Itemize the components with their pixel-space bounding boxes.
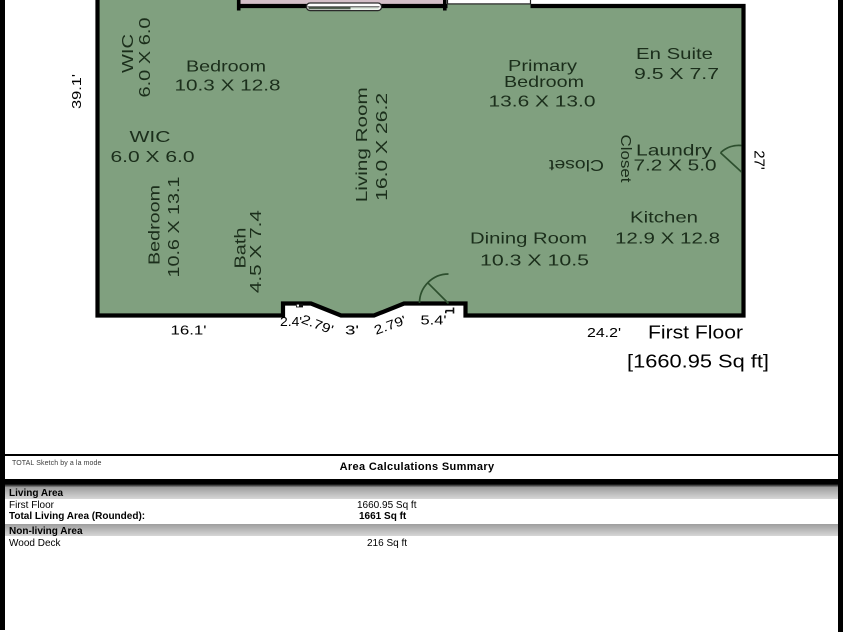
- svg-text:Closet: Closet: [548, 156, 604, 173]
- svg-text:En Suite: En Suite: [636, 46, 713, 63]
- svg-text:WIC: WIC: [120, 34, 137, 73]
- svg-text:Dining Room: Dining Room: [470, 231, 587, 248]
- svg-text:First Floor: First Floor: [648, 323, 743, 343]
- svg-text:16.1': 16.1': [171, 323, 207, 338]
- svg-text:16.0 X 26.2: 16.0 X 26.2: [374, 93, 391, 201]
- svg-text:12.9 X 12.8: 12.9 X 12.8: [615, 231, 720, 248]
- svg-text:Bedroom: Bedroom: [186, 59, 266, 76]
- svg-text:2.4': 2.4': [280, 314, 302, 329]
- svg-text:10.6 X 13.1: 10.6 X 13.1: [166, 176, 183, 277]
- svg-text:Bath: Bath: [232, 227, 249, 268]
- svg-text:7.2 X 5.0: 7.2 X 5.0: [634, 158, 717, 175]
- svg-text:2.79': 2.79': [299, 311, 335, 337]
- svg-text:Primary: Primary: [508, 58, 577, 75]
- svg-text:6.0 X 6.0: 6.0 X 6.0: [137, 17, 154, 97]
- svg-text:WIC: WIC: [130, 129, 171, 146]
- svg-text:Living Room: Living Room: [354, 87, 371, 202]
- svg-text:39.1': 39.1': [69, 74, 84, 109]
- svg-text:Closet: Closet: [617, 135, 633, 183]
- svg-text:Bedroom: Bedroom: [147, 185, 164, 265]
- svg-text:24.2': 24.2': [587, 325, 621, 340]
- svg-text:5.4': 5.4': [421, 313, 447, 328]
- svg-text:[1660.95 Sq ft]: [1660.95 Sq ft]: [627, 352, 769, 372]
- svg-text:13.6 X 13.0: 13.6 X 13.0: [489, 94, 596, 111]
- svg-text:6.0 X 6.0: 6.0 X 6.0: [111, 149, 195, 166]
- svg-text:Bedroom: Bedroom: [504, 74, 584, 91]
- svg-text:3': 3': [345, 323, 359, 338]
- svg-text:27': 27': [751, 150, 767, 170]
- svg-text:4.5 X 7.4: 4.5 X 7.4: [248, 210, 265, 293]
- svg-text:10.3 X 12.8: 10.3 X 12.8: [175, 78, 281, 95]
- svg-text:9.5 X 7.7: 9.5 X 7.7: [634, 66, 719, 83]
- svg-text:10.3 X 10.5: 10.3 X 10.5: [480, 253, 589, 270]
- svg-text:Kitchen: Kitchen: [630, 210, 698, 227]
